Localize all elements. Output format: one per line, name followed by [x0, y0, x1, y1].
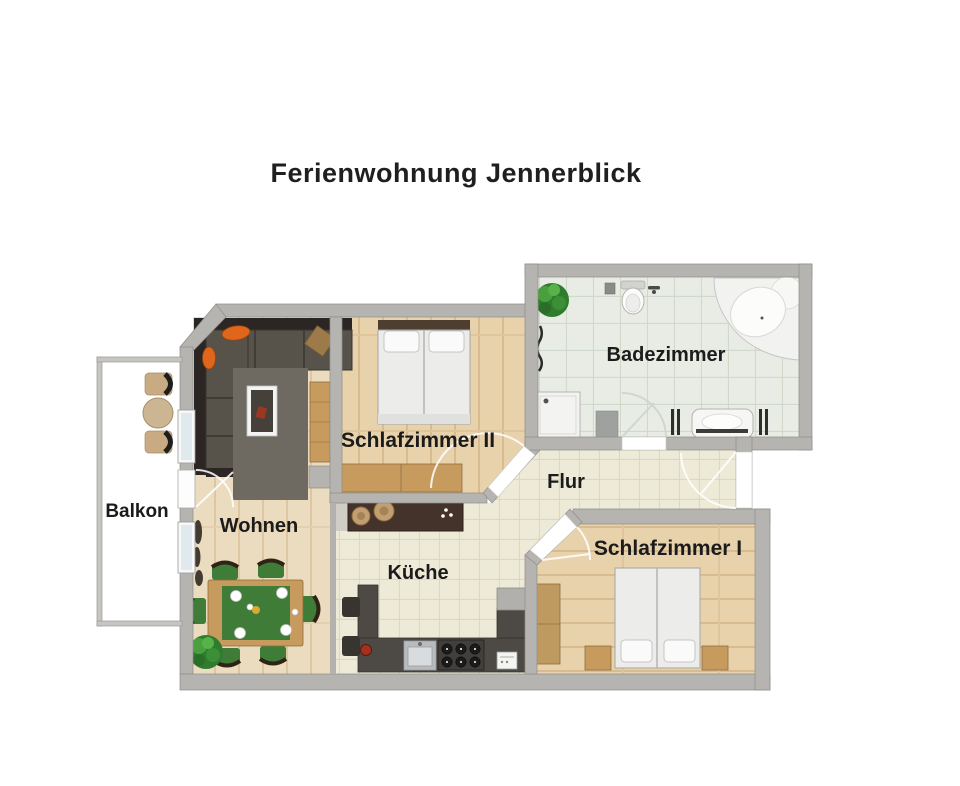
twin-beds — [615, 568, 700, 668]
kettle — [361, 645, 372, 656]
dresser — [340, 464, 462, 492]
pillow — [664, 640, 695, 662]
bedroom1-top-wall — [573, 509, 770, 524]
balcony-furniture — [143, 373, 173, 453]
balcony-wall — [97, 357, 102, 626]
sink — [404, 641, 436, 670]
floor-plan-svg: Ferienwohnung Jennerblick — [0, 0, 960, 786]
balcony-window — [178, 522, 195, 573]
bath-right-wall — [799, 264, 812, 450]
balcony-table — [143, 398, 173, 428]
wall-control — [605, 283, 615, 294]
sideboard — [310, 382, 330, 462]
floor-plant — [189, 635, 223, 669]
bedroom1-left-wall — [525, 555, 537, 674]
bedroom2-bottom-wall — [330, 493, 487, 503]
nightstand — [702, 646, 728, 670]
stove — [438, 640, 484, 670]
nightstand — [585, 646, 611, 670]
small-appliance — [497, 652, 517, 669]
bath-mat — [596, 411, 618, 438]
balcony-chair — [145, 373, 172, 395]
wardrobe — [535, 584, 560, 664]
dining-chair — [301, 596, 319, 622]
pillow — [429, 331, 464, 352]
flur-door — [736, 452, 752, 508]
balcony-wall — [97, 621, 182, 626]
bar-counter — [348, 501, 463, 531]
bathroom-plant — [535, 283, 569, 317]
pillow — [621, 640, 652, 662]
living-bedroom2-wall — [330, 317, 342, 503]
top-wall — [216, 304, 538, 317]
bar-stool — [342, 597, 360, 617]
double-bed — [378, 320, 470, 424]
dining-chair — [258, 561, 284, 579]
label-kueche: Küche — [387, 562, 448, 584]
bedroom1-right-wall — [755, 509, 770, 690]
bar-stool — [342, 636, 360, 656]
bottom-wall — [180, 674, 770, 690]
label-badezimmer: Badezimmer — [607, 344, 726, 366]
kitchen-shadow — [336, 503, 348, 531]
page-title: Ferienwohnung Jennerblick — [270, 158, 642, 188]
balcony-chair — [145, 431, 172, 453]
toilet — [621, 281, 645, 314]
bathroom-sink — [692, 409, 753, 438]
bath-bottom-wall — [525, 437, 812, 450]
label-wohnen: Wohnen — [220, 515, 299, 537]
shower — [536, 392, 580, 438]
fridge — [497, 588, 527, 610]
bath-top-wall — [525, 264, 812, 277]
coffee-table — [247, 386, 277, 436]
floor-transition — [330, 503, 336, 674]
pillow — [384, 331, 419, 352]
dining-chair — [212, 563, 238, 581]
balkon-floor — [102, 362, 180, 621]
balcony-window — [178, 410, 195, 463]
dining-chair — [260, 646, 286, 664]
orange-cushion — [203, 347, 216, 369]
balcony-wall — [97, 357, 182, 362]
balcony-door — [178, 470, 195, 508]
label-flur: Flur — [547, 471, 585, 493]
label-schlafzimmer-1: Schlafzimmer I — [594, 537, 742, 560]
bath-left-wall — [525, 264, 538, 450]
label-schlafzimmer-2: Schlafzimmer II — [341, 429, 495, 452]
bathroom-door — [622, 437, 666, 450]
label-balkon: Balkon — [105, 501, 168, 522]
floor-plan-page: Ferienwohnung Jennerblick — [0, 0, 960, 786]
